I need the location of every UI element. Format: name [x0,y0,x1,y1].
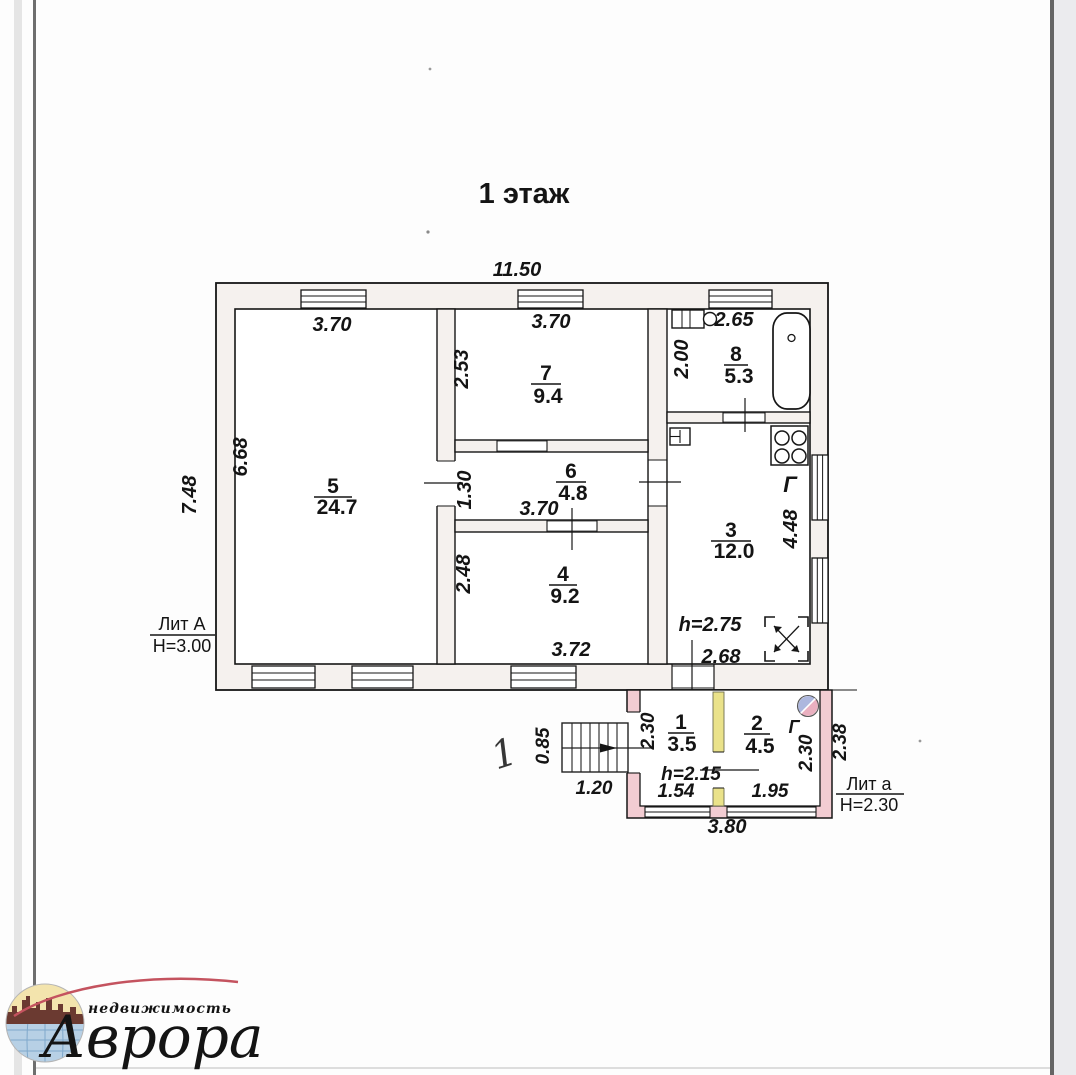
dim-room6-depth: 1.30 [454,471,476,510]
scan-speck [429,68,432,71]
annex-partition-yellow [713,692,724,806]
gas-letter-kitchen: Г [783,472,798,497]
heater-circle-icon [798,696,819,717]
ceiling-height-main: h=2.75 [679,614,743,636]
room5-number: 5 [327,475,339,498]
page-edge-left-line [33,0,36,1075]
room7-number: 7 [540,362,552,385]
window-room5-bottom-2 [352,666,413,688]
dim-room5-depth: 6.68 [230,437,252,477]
red-handwritten-mark: 1 [486,729,523,778]
window-room4-bottom [511,666,576,688]
dim-room7-width: 3.70 [532,311,571,333]
wall-room7-room6 [455,440,648,452]
window-annex-room1 [645,807,710,817]
washbasin-icon [672,310,717,328]
dim-room6-width: 3.70 [520,498,559,520]
window-room5-bottom-1 [252,666,315,688]
room5-area: 24.7 [317,496,358,519]
dim-annex-total-width: 3.80 [708,816,747,838]
room4-area: 9.2 [550,585,579,608]
annex-room2-number: 2 [751,712,763,735]
dim-room4-width: 3.72 [552,639,591,661]
page-edge-right-line [1050,0,1054,1075]
page-edge-right-shadow [1054,0,1076,1075]
room6-number: 6 [565,460,577,483]
dim-annex-room2-width: 1.95 [752,781,789,802]
room8-area: 5.3 [724,365,753,388]
window-bath-top [709,290,772,308]
dim-annex-room2-depth: 2.30 [796,734,817,772]
room7-area: 9.4 [533,385,563,408]
dim-room7-depth: 2.53 [451,350,473,390]
lit-a-height: Н=3.00 [153,636,212,656]
lit-a-small-height: Н=2.30 [840,795,899,815]
scanned-floorplan-page: 1 этаж 11.50 7.48 6.68 3.70 5 24.7 3.70 … [0,0,1076,1075]
room6-area: 4.8 [558,482,588,505]
dim-annex-room1-width: 1.54 [658,781,695,802]
dim-total-width: 11.50 [493,259,542,281]
dim-kitchen-bottom-width: 2.68 [701,646,742,668]
bathtub-icon [773,313,810,409]
dim-room3-depth: 4.48 [780,509,802,550]
scan-speck [426,230,429,233]
dim-room8-width: 2.65 [714,309,755,331]
dim-total-depth: 7.48 [179,475,201,515]
dim-annex-room1-depth: 2.30 [638,712,659,750]
room3-number: 3 [725,519,737,542]
annex-room2-area: 4.5 [745,735,775,758]
gas-stove-icon [771,426,808,465]
dim-stairs-depth: 0.85 [533,727,554,764]
window-room5-top [301,290,366,308]
agency-logo: недвижимость Аврора [6,979,263,1071]
dim-room5-width: 3.70 [313,314,352,336]
room8-number: 8 [730,343,742,366]
lit-a-small-label: Лит а [846,774,892,794]
scan-speck [919,740,922,743]
door-room7-room6 [497,440,547,452]
dim-annex-right-depth: 2.38 [830,723,851,761]
logo-brand-name: Аврора [38,1003,263,1071]
window-kitchen-right-1 [812,455,828,520]
dim-room4-depth: 2.48 [453,554,475,595]
kitchen-sink-icon [670,428,690,445]
page-edge-left-shadow [14,0,22,1075]
lit-a-label: Лит А [158,614,205,634]
room3-area: 12.0 [714,540,755,563]
room4-number: 4 [557,563,569,586]
building-a-interior [235,309,810,664]
page-title: 1 этаж [479,178,570,210]
window-room7-top [518,290,583,308]
annex-room1-number: 1 [675,711,687,734]
dim-room8-depth: 2.00 [671,340,693,380]
gas-letter-annex: Г [788,717,800,737]
annex-room1-area: 3.5 [667,733,697,756]
dim-stairs-width: 1.20 [576,778,613,799]
window-kitchen-right-2 [812,558,828,623]
